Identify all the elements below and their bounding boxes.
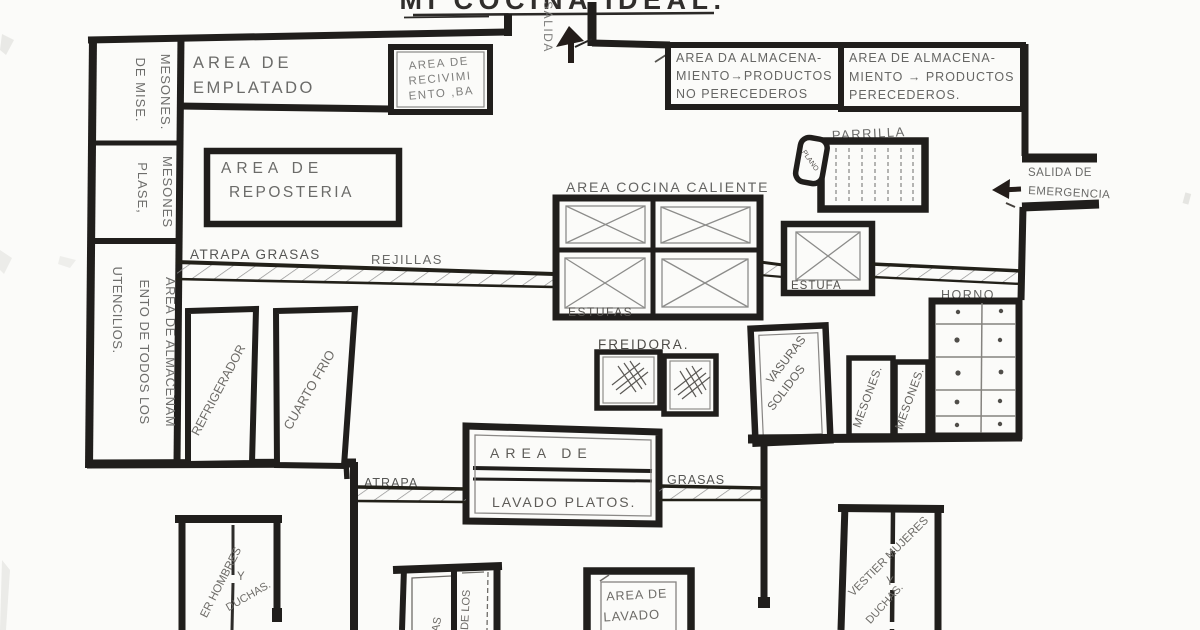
svg-text:DE MISE.: DE MISE. (133, 57, 148, 122)
svg-text:SALIDA DE: SALIDA DE (1028, 167, 1092, 179)
svg-text:MESONES: MESONES (160, 156, 175, 228)
svg-text:AS: AS (430, 616, 444, 630)
svg-text:MIENTO → PRODUCTOS: MIENTO → PRODUCTOS (849, 70, 1014, 84)
svg-text:Y: Y (237, 571, 245, 583)
svg-text:AREA DE ALMACENAM: AREA DE ALMACENAM (163, 277, 178, 427)
svg-text:ENTO DE TODOS LOS: ENTO DE TODOS LOS (137, 279, 152, 424)
svg-text:SALIDA: SALIDA (541, 1, 555, 53)
svg-text:PERECEDEROS.: PERECEDEROS. (849, 88, 960, 102)
svg-text:ESTUFAS: ESTUFAS (568, 305, 633, 319)
svg-text:UTENCILIOS.: UTENCILIOS. (110, 266, 125, 353)
svg-text:LAVADO PLATOS.: LAVADO PLATOS. (492, 494, 636, 510)
svg-text:REPOSTERIA: REPOSTERIA (229, 184, 354, 201)
svg-text:MIENTO→PRODUCTOS: MIENTO→PRODUCTOS (676, 69, 833, 83)
svg-text:NO PERECEDEROS: NO PERECEDEROS (676, 87, 808, 101)
svg-text:AREA DE ALMACENA-: AREA DE ALMACENA- (849, 51, 996, 65)
svg-text:AREA DE: AREA DE (193, 54, 293, 72)
svg-text:AREA COCINA CALIENTE: AREA COCINA CALIENTE (566, 179, 769, 195)
svg-text:PLASE,: PLASE, (135, 162, 150, 214)
svg-text:AREA DA ALMACENA-: AREA DA ALMACENA- (676, 51, 822, 65)
svg-text:AREA DE: AREA DE (221, 160, 323, 177)
svg-text:LAVADO: LAVADO (603, 607, 661, 625)
svg-text:REJILLAS: REJILLAS (371, 252, 443, 267)
svg-text:DE LOS: DE LOS (459, 589, 473, 630)
svg-text:ATRAPA GRASAS: ATRAPA GRASAS (190, 247, 321, 262)
svg-text:ESTUFA: ESTUFA (791, 280, 842, 292)
svg-text:AREA DE: AREA DE (490, 445, 593, 461)
svg-text:MESONES.: MESONES. (158, 54, 173, 131)
svg-text:EMPLATADO: EMPLATADO (193, 79, 315, 97)
